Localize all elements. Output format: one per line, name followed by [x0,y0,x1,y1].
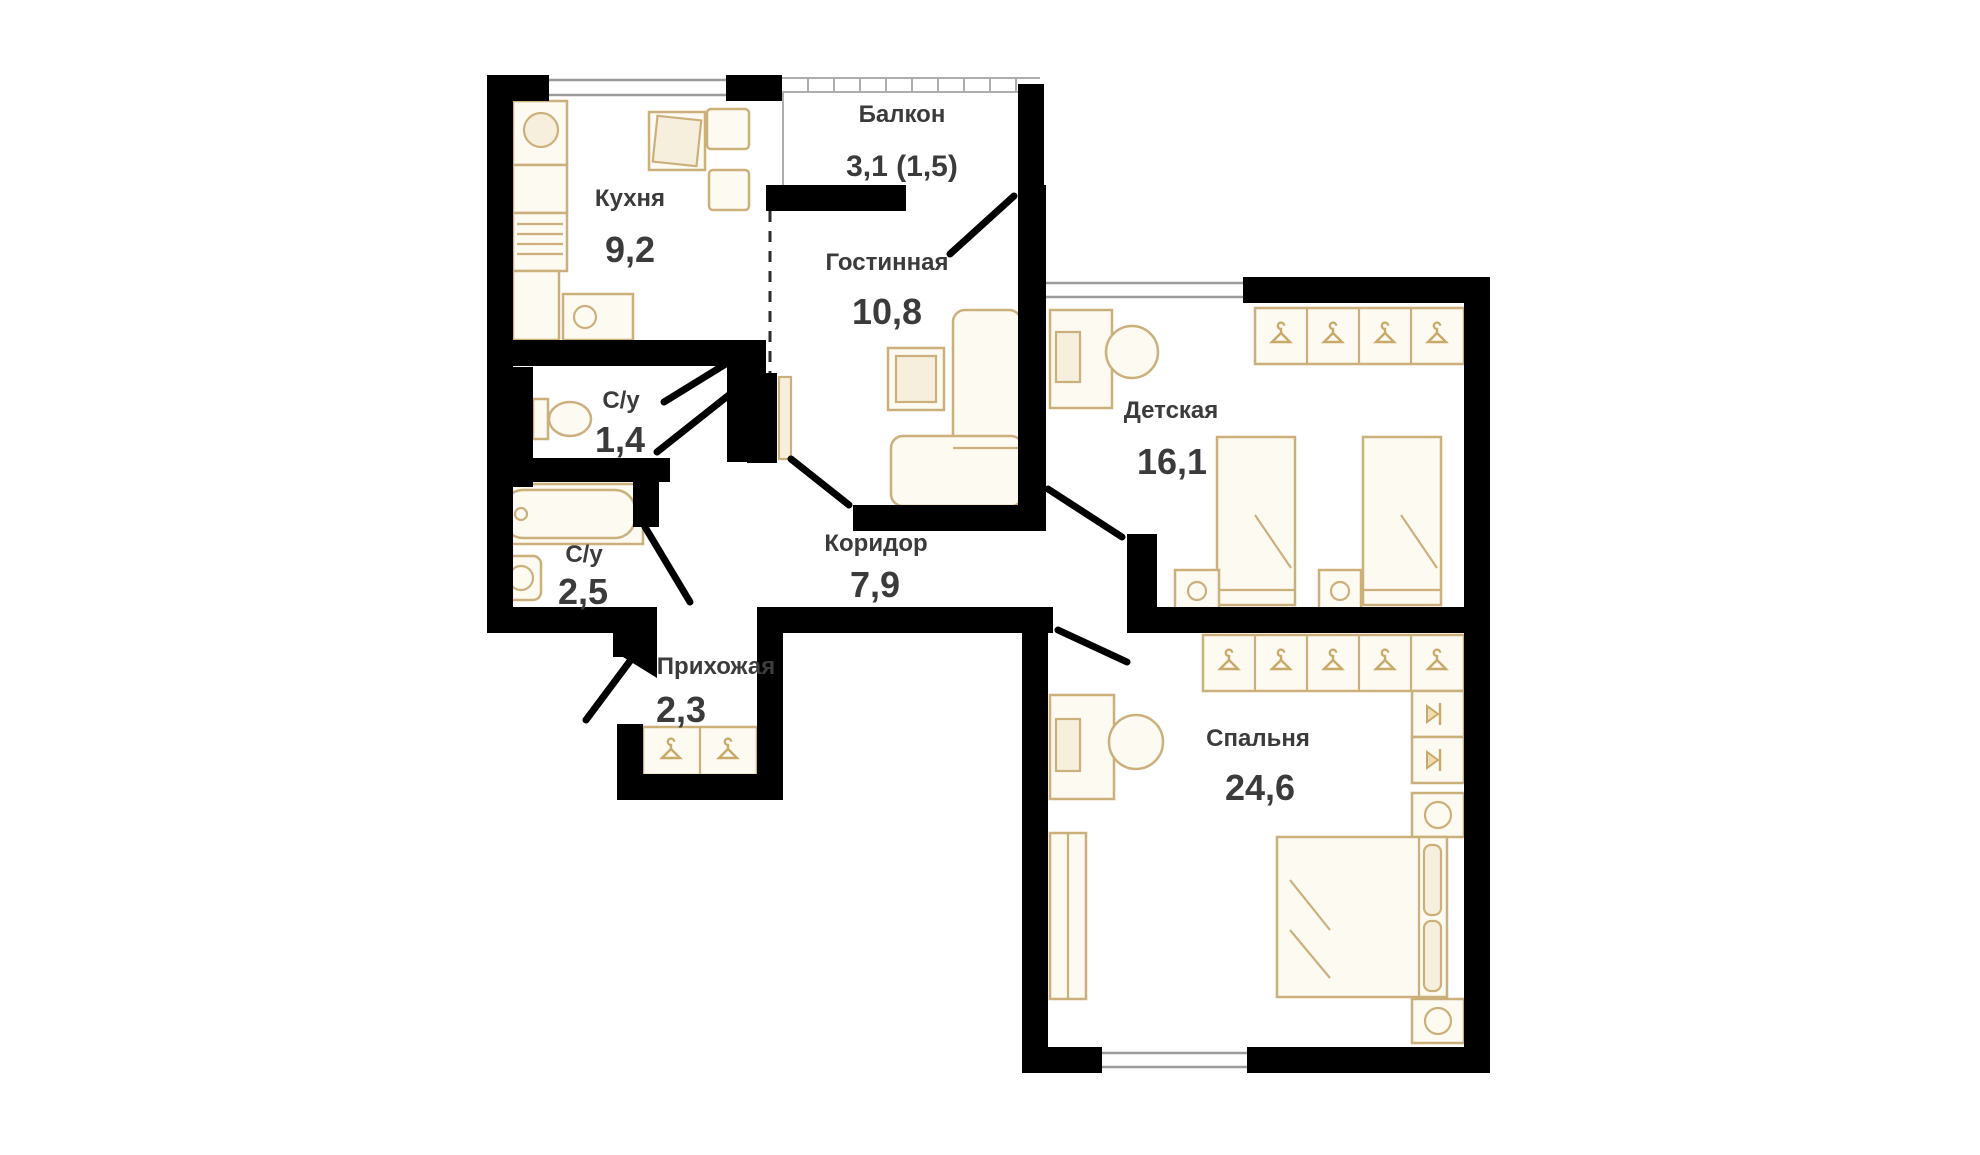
living-door [791,459,849,505]
chair [707,109,749,149]
cabinet-bedroom [1050,833,1086,999]
entrance-door [586,657,633,720]
bedroom-door [1058,630,1127,662]
room-label-balcony: Балкон [859,101,946,128]
armchair [888,348,944,410]
bed-children-1 [1217,437,1295,605]
shelf-unit [1412,691,1464,783]
room-label-hallway: Прихожая [657,653,775,680]
room-area-bedroom: 24,6 [1225,767,1295,808]
kitchen-sink-icon [524,113,558,147]
floor-plan-page: Кухня 9,2 Балкон 3,1 (1,5) Гостинная 10,… [0,0,1980,1155]
room-area-living: 10,8 [852,291,922,332]
kitchen-window [549,80,726,95]
room-label-corridor: Коридор [824,530,927,557]
desk-bedroom [1050,695,1163,799]
wardrobe-hallway [643,727,757,775]
computer-icon [1056,332,1080,382]
room-area-children: 16,1 [1137,441,1207,482]
bathtub-icon [495,484,643,544]
balcony-door [950,196,1014,254]
double-bed [1277,837,1447,997]
room-label-children: Детская [1124,397,1219,424]
room-label-bath-small: С/у [602,387,640,414]
wardrobe-bedroom [1203,635,1464,691]
toilet-icon [533,399,591,439]
children-window [1046,283,1243,297]
room-label-living: Гостинная [826,249,949,276]
floor-plan-svg: Кухня 9,2 Балкон 3,1 (1,5) Гостинная 10,… [0,0,1980,1155]
computer-icon [1056,719,1080,771]
children-door [1048,489,1122,537]
nightstand [1319,570,1361,612]
stove-icon [513,213,567,271]
room-label-bedroom: Спальня [1206,725,1310,752]
room-area-bath-small: 1,4 [595,419,645,460]
kitchen-door [664,362,729,402]
chair [1109,715,1163,769]
chair [1106,326,1158,378]
pillow [1424,845,1441,915]
bath-big-door [645,527,690,602]
bed-children-2 [1363,437,1441,605]
room-label-kitchen: Кухня [595,185,665,212]
chair [709,170,749,210]
room-area-corridor: 7,9 [850,564,900,605]
nightstand [1412,999,1464,1043]
nightstand [1412,793,1464,837]
room-area-bath-big: 2,5 [558,571,608,612]
desk-children [1050,310,1158,408]
kitchen-counter [513,101,633,340]
room-label-bath-big: С/у [565,541,603,568]
nightstand [1175,570,1219,612]
room-area-hallway: 2,3 [656,689,706,730]
wardrobe-children [1255,308,1464,364]
living-door-leaf [779,377,791,459]
room-area-balcony: 3,1 (1,5) [846,150,958,183]
pillow [1424,921,1441,991]
bedroom-window [1102,1053,1247,1067]
room-area-kitchen: 9,2 [605,229,655,270]
